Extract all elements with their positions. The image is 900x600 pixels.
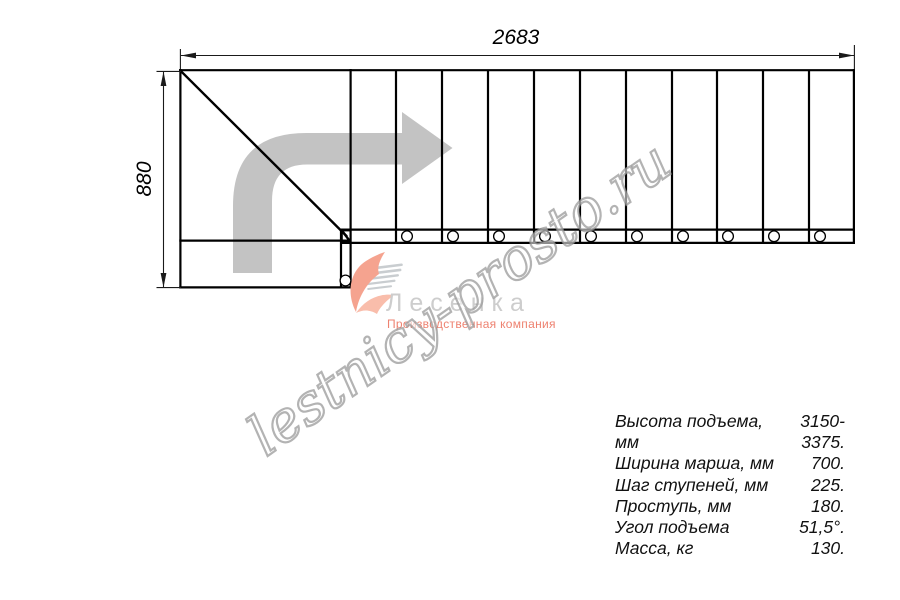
specs-table: Высота подъема, мм 3150-3375. Ширина мар… [615, 411, 845, 559]
spec-row: Высота подъема, мм 3150-3375. [615, 411, 845, 453]
spec-label: Высота подъема, мм [615, 411, 768, 453]
logo-brand-name: Лесенка [386, 289, 586, 318]
spec-row: Шаг ступеней, мм 225. [615, 475, 845, 496]
spec-row: Ширина марша, мм 700. [615, 453, 845, 474]
dimension-height: 880 [133, 71, 181, 287]
bolt-circles [340, 231, 825, 286]
spec-label: Масса, кг [615, 538, 693, 559]
spec-label: Проступь, мм [615, 496, 731, 517]
spec-value: 225. [811, 475, 845, 496]
dimension-height-label: 880 [133, 161, 156, 196]
spec-value: 51,5°. [799, 517, 845, 538]
spec-row: Масса, кг 130. [615, 538, 845, 559]
spec-row: Угол подъема 51,5°. [615, 517, 845, 538]
spec-value: 3150-3375. [768, 411, 845, 453]
spec-label: Ширина марша, мм [615, 453, 774, 474]
spec-row: Проступь, мм 180. [615, 496, 845, 517]
logo-brand-subtitle: Производственная компания [387, 317, 587, 331]
direction-arrow-icon [233, 112, 453, 273]
spec-label: Шаг ступеней, мм [615, 475, 768, 496]
step-divider-lines [396, 70, 809, 243]
spec-value: 130. [811, 538, 845, 559]
staircase-drawing-page: 2683 880 Лесенка Производственная компан… [0, 0, 900, 600]
spec-label: Угол подъема [615, 517, 730, 538]
staircase-outline [179, 69, 855, 289]
spec-value: 180. [811, 496, 845, 517]
dimension-width: 2683 [180, 26, 854, 69]
spec-value: 700. [811, 453, 845, 474]
dimension-width-label: 2683 [492, 26, 540, 49]
